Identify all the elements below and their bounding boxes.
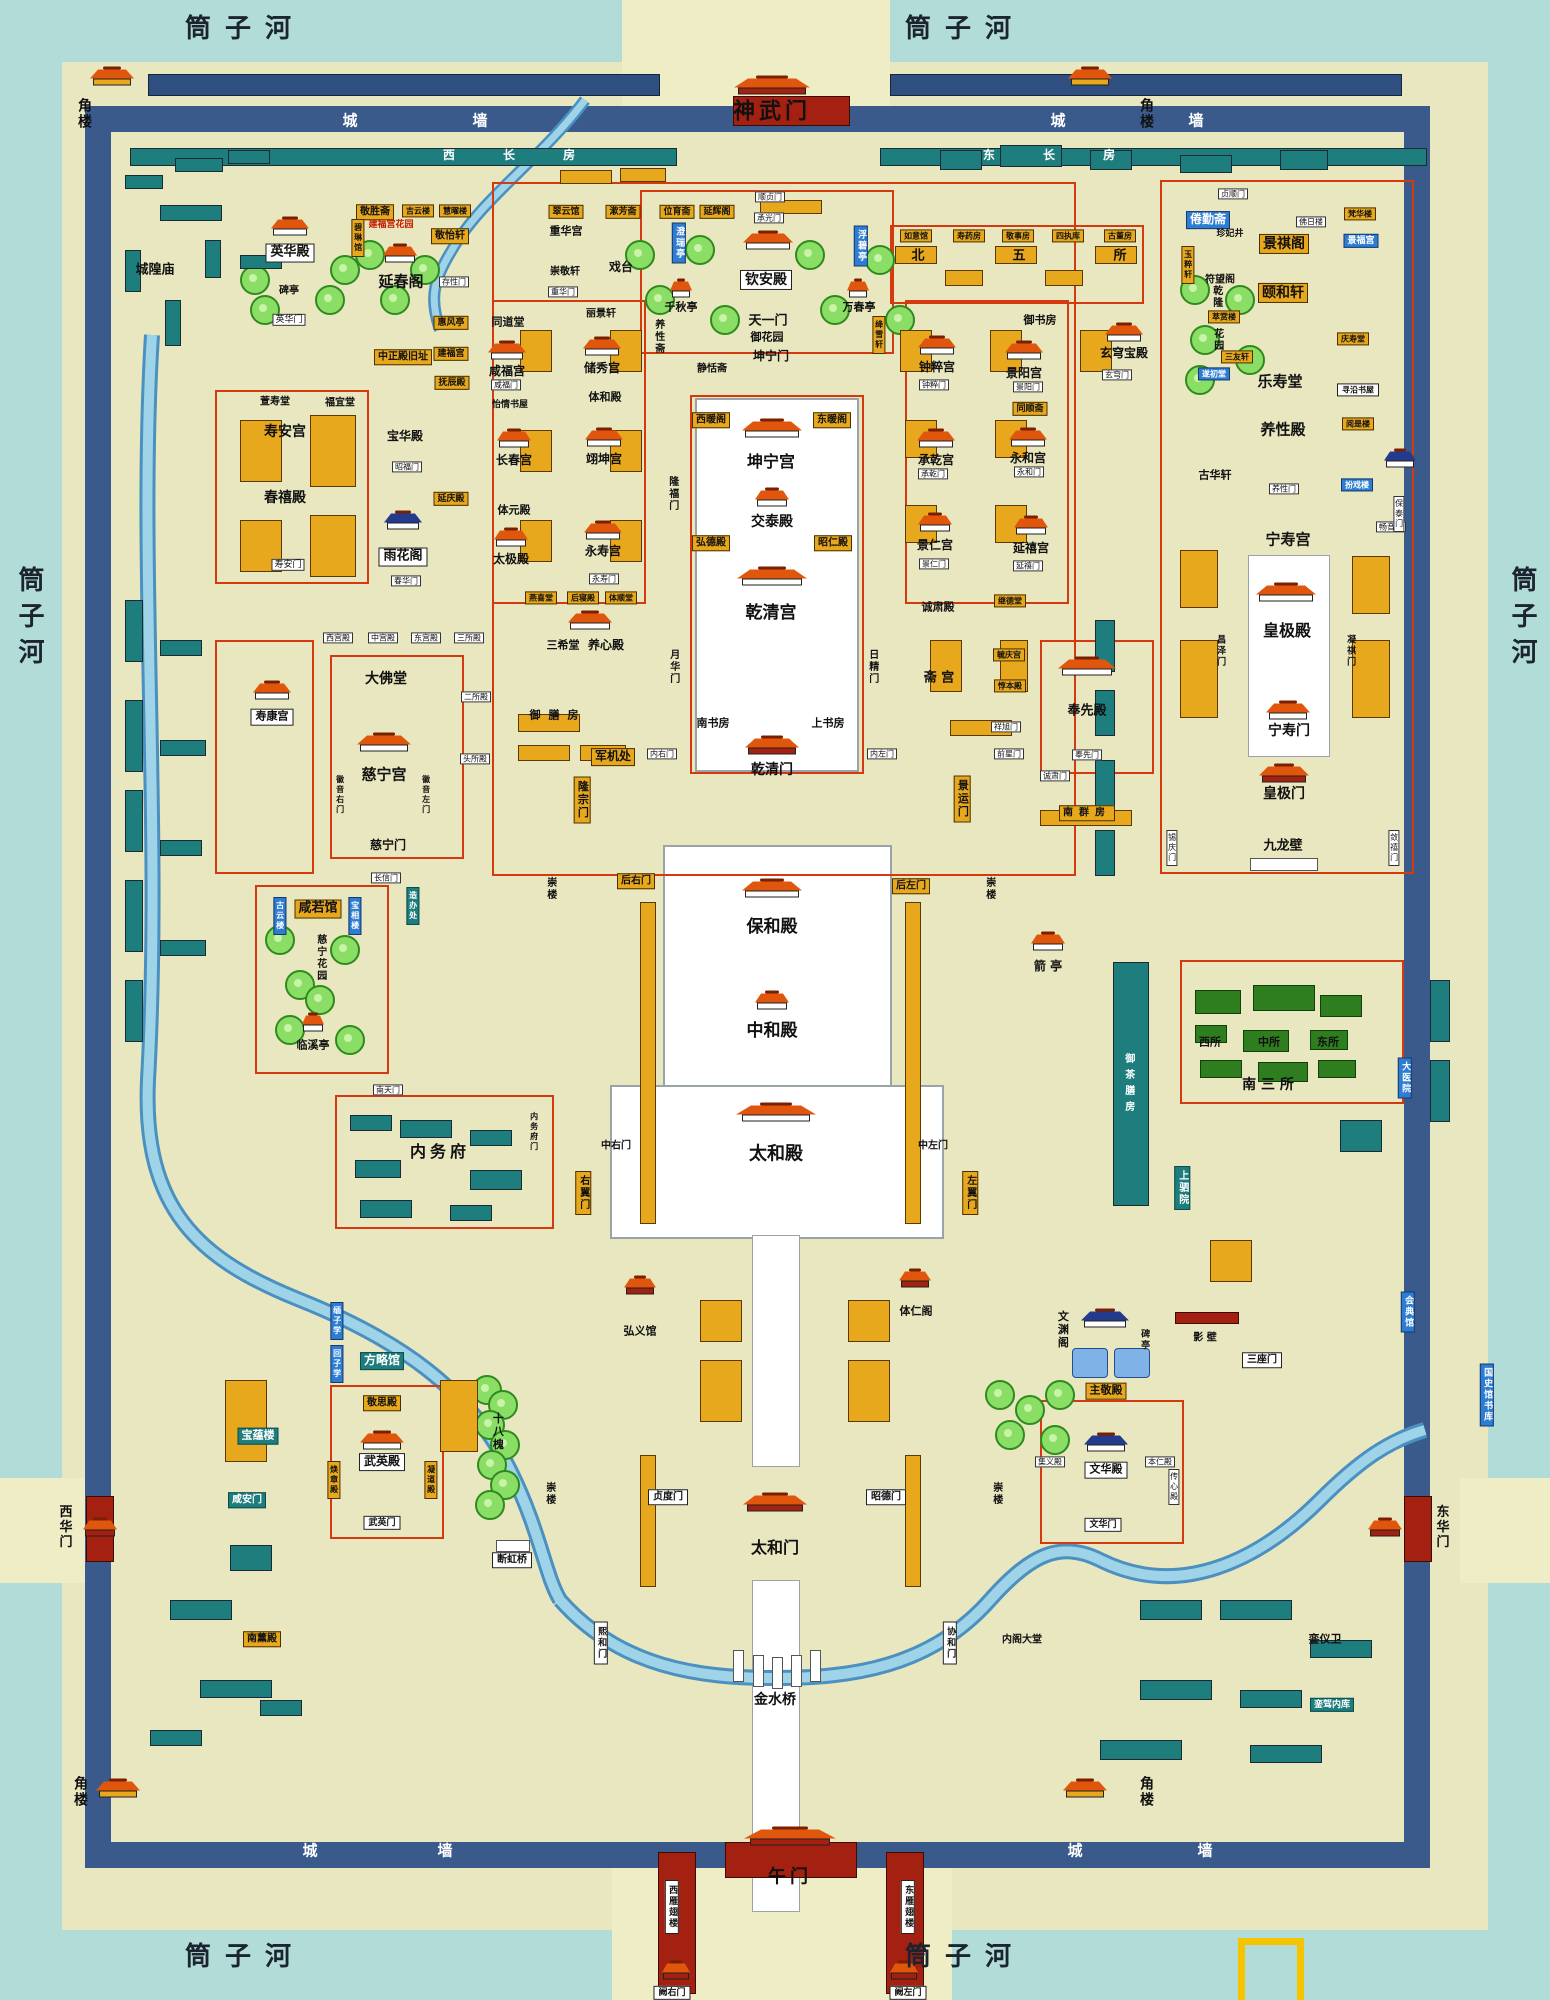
palace-icon xyxy=(899,1269,931,1288)
palace-icon xyxy=(733,76,811,95)
map-label: 南群房 xyxy=(1059,805,1115,821)
map-label: 崇楼 xyxy=(983,877,995,901)
map-label: 坤宁门 xyxy=(753,350,789,364)
tree-icon xyxy=(1040,1425,1070,1455)
map-label: 太和殿 xyxy=(749,1145,803,1166)
yingbi-screen xyxy=(1175,1312,1239,1324)
tree-icon xyxy=(330,255,360,285)
map-label: 玉粹轩 xyxy=(1181,246,1194,284)
map-label: 东 长 房 xyxy=(983,149,1137,163)
map-label: 月华门 xyxy=(667,649,679,685)
map-label: 缅子学 xyxy=(330,1302,343,1340)
map-label: 古董房 xyxy=(1104,229,1136,242)
map-label: 庆寿堂 xyxy=(1337,332,1369,345)
palace-icon xyxy=(1266,701,1310,720)
background-block xyxy=(620,168,666,182)
background-block xyxy=(1195,990,1241,1014)
map-label: 宝蕴楼 xyxy=(238,1428,279,1445)
map-label: 继德堂 xyxy=(994,594,1026,607)
map-label: 后寝殿 xyxy=(567,591,599,604)
map-label: 墙 xyxy=(1197,1842,1212,1859)
golden-water-bridge xyxy=(733,1650,744,1682)
map-label: 重华门 xyxy=(548,286,578,297)
map-label: 大佛堂 xyxy=(365,671,407,687)
background-block xyxy=(1430,1060,1450,1122)
background-block xyxy=(700,1300,742,1342)
map-label: 右翼门 xyxy=(575,1171,591,1215)
map-label: 北 xyxy=(911,250,924,265)
map-label: 乾清宫 xyxy=(746,604,797,624)
map-label: 惇本殿 xyxy=(994,679,1026,692)
background-block xyxy=(700,1360,742,1422)
map-label: 诚肃门 xyxy=(1040,770,1070,781)
background-block xyxy=(125,700,143,772)
background-block xyxy=(1100,1740,1182,1760)
palace-icon xyxy=(488,341,526,360)
map-label: 崇敬轩 xyxy=(550,266,580,278)
map-label: 玄穹宝殿 xyxy=(1100,347,1148,361)
map-label: 武英门 xyxy=(363,1516,400,1530)
map-label: 城 xyxy=(1050,112,1065,129)
tree-icon xyxy=(795,240,825,270)
background-block xyxy=(1352,556,1390,614)
palace-icon xyxy=(1008,428,1048,447)
background-block xyxy=(1318,1060,1356,1078)
palace-icon xyxy=(270,217,310,236)
map-label: 敬思殿 xyxy=(363,1395,401,1411)
ng-logo xyxy=(1238,1938,1304,2000)
background-block xyxy=(1045,270,1083,286)
background-block xyxy=(905,902,921,1224)
map-label: 军机处 xyxy=(591,748,635,766)
map-label: 十八槐 xyxy=(491,1413,504,1452)
map-label: 位育斋 xyxy=(659,205,694,219)
map-label: 养心殿 xyxy=(588,639,624,653)
map-label: 澄瑞亭 xyxy=(672,223,686,264)
map-label: 颐和轩 xyxy=(1258,283,1308,303)
background-block xyxy=(470,1130,512,1146)
map-label: 东宫殿 xyxy=(411,632,441,643)
palace-icon xyxy=(917,336,957,355)
map-label: 寿康宫 xyxy=(251,709,294,726)
tree-icon xyxy=(865,245,895,275)
tree-icon xyxy=(240,265,270,295)
palace-icon xyxy=(496,429,532,448)
map-label: 养性斋 xyxy=(652,319,664,355)
map-label: 弘德殿 xyxy=(692,535,730,551)
map-label: 隆福门 xyxy=(666,476,678,512)
forbidden-city-map: 筒子河筒子河筒子河筒子河筒子河筒子河城墙城墙城墙城墙角楼角楼角楼角楼西 长 房东… xyxy=(0,0,1550,2000)
background-block xyxy=(450,1205,492,1221)
background-block xyxy=(355,1160,401,1178)
tree-icon xyxy=(995,1420,1025,1450)
map-label: 咸福门 xyxy=(491,379,521,390)
map-label: 慈宁花园 xyxy=(314,934,326,982)
map-label: 中右门 xyxy=(601,1140,631,1152)
map-label: 集义殿 xyxy=(1035,1456,1065,1467)
map-label: 皇极殿 xyxy=(1263,622,1311,640)
map-label: 凝道殿 xyxy=(424,1461,437,1499)
map-label: 御书房 xyxy=(1024,315,1057,328)
map-label: 中正殿旧址 xyxy=(374,349,432,365)
background-block xyxy=(200,1680,272,1698)
map-label: 中宫殿 xyxy=(368,632,398,643)
map-label: 金水桥 xyxy=(754,1692,796,1708)
map-label: 阅是楼 xyxy=(1342,417,1374,430)
palace-icon xyxy=(737,567,807,586)
background-block xyxy=(310,515,356,577)
map-label: 断虹桥 xyxy=(492,1552,532,1568)
background-block xyxy=(1180,155,1232,173)
donghuamen-block xyxy=(1404,1496,1432,1562)
map-label: 上驷院 xyxy=(1174,1166,1190,1210)
map-label: 珍妃井 xyxy=(1216,229,1243,239)
background-block xyxy=(1280,150,1328,170)
golden-water-bridge xyxy=(772,1657,783,1689)
map-label: 南天门 xyxy=(373,1084,403,1095)
map-label: 协和门 xyxy=(943,1622,957,1665)
shoukang-compound xyxy=(215,640,314,874)
map-label: 熙和门 xyxy=(594,1622,608,1665)
palace-icon xyxy=(742,231,794,250)
background-block xyxy=(848,1360,890,1422)
map-label: 墙 xyxy=(437,1842,452,1859)
palace-icon xyxy=(301,1013,325,1032)
map-label: 景仁宫 xyxy=(917,539,953,553)
map-label: 国史馆书库 xyxy=(1480,1364,1494,1427)
palace-icon xyxy=(1104,323,1144,342)
background-block xyxy=(1140,1600,1202,1620)
map-label: 保和殿 xyxy=(747,918,798,938)
map-label: 东雁翅楼 xyxy=(901,1880,915,1934)
map-label: 弘义馆 xyxy=(624,1326,657,1339)
map-label: 前星门 xyxy=(994,748,1024,759)
map-label: 延庆殿 xyxy=(433,492,468,506)
map-label: 文渊阁 xyxy=(1056,1311,1069,1350)
background-block xyxy=(125,175,163,189)
palace-icon xyxy=(916,429,956,448)
palace-icon xyxy=(384,511,422,530)
palace-icon xyxy=(493,528,529,547)
map-label: 建福宫花园 xyxy=(368,220,413,230)
map-label: 城 xyxy=(1067,1842,1082,1859)
palace-icon xyxy=(1014,516,1048,535)
map-label: 西 长 房 xyxy=(443,149,597,163)
background-block xyxy=(848,1300,890,1342)
map-label: 景仁门 xyxy=(919,558,949,569)
map-label: 碑亭 xyxy=(279,285,299,297)
background-block xyxy=(1220,1600,1292,1620)
palace-icon xyxy=(1255,583,1317,602)
map-label: 敬怡轩 xyxy=(431,228,469,244)
map-label: 梵华楼 xyxy=(1344,207,1376,220)
map-label: 内阁大堂 xyxy=(1002,1634,1042,1646)
map-label: 寻沿书屋 xyxy=(1337,383,1379,396)
map-label: 景运门 xyxy=(954,776,971,823)
map-label: 坤宁宫 xyxy=(747,453,795,471)
map-label: 浮碧亭 xyxy=(854,226,868,267)
map-label: 昌泽门 xyxy=(1215,635,1225,668)
map-label: 昭仁殿 xyxy=(814,535,852,551)
map-label: 静恬斋 xyxy=(697,363,727,375)
map-label: 筒子河 xyxy=(1506,566,1536,674)
map-label: 乾清门 xyxy=(751,762,793,778)
map-label: 体仁阁 xyxy=(900,1306,933,1319)
map-label: 三希堂 xyxy=(547,640,580,653)
tree-icon xyxy=(305,985,335,1015)
background-block xyxy=(160,740,206,756)
map-label: 昭福门 xyxy=(392,461,422,472)
map-label: 四执库 xyxy=(1052,229,1084,242)
map-label: 后右门 xyxy=(617,873,655,889)
map-label: 筒子河 xyxy=(13,566,43,674)
tree-icon xyxy=(685,235,715,265)
map-label: 会典馆 xyxy=(1401,1292,1415,1333)
map-label: 千秋亭 xyxy=(665,302,698,315)
tree-icon xyxy=(710,305,740,335)
background-block xyxy=(470,1170,522,1190)
map-label: 萃赏楼 xyxy=(1208,310,1240,323)
map-label: 御花园 xyxy=(751,332,784,345)
palace-icon xyxy=(83,1518,117,1537)
palace-icon xyxy=(1258,764,1310,783)
palace-icon xyxy=(360,1431,404,1450)
background-block xyxy=(1095,760,1115,812)
map-label: 佛日楼 xyxy=(1296,216,1326,227)
background-block xyxy=(640,1455,656,1587)
map-label: 中所 xyxy=(1258,1037,1280,1050)
map-label: 碑亭 xyxy=(1139,1329,1149,1351)
map-label: 延春阁 xyxy=(378,273,423,290)
palace-icon xyxy=(252,681,292,700)
map-label: 寿药房 xyxy=(953,229,985,242)
palace-icon xyxy=(918,513,952,532)
map-label: 遂初堂 xyxy=(1198,367,1230,380)
map-label: 景阳门 xyxy=(1013,381,1043,392)
map-label: 角楼 xyxy=(76,98,92,130)
tree-icon xyxy=(315,285,345,315)
map-label: 长春宫 xyxy=(496,454,532,468)
map-label: 敛禧门 xyxy=(1388,830,1399,866)
map-label: 绛雪轩 xyxy=(872,316,885,354)
tree-icon xyxy=(335,1025,365,1055)
map-label: 阙右门 xyxy=(653,1986,690,2000)
duanhong-bridge xyxy=(496,1540,530,1552)
map-label: 本仁殿 xyxy=(1145,1456,1175,1467)
background-block xyxy=(1340,1120,1382,1152)
map-label: 锡庆门 xyxy=(1166,830,1177,866)
map-label: 永和门 xyxy=(1014,466,1044,477)
map-label: 斋 宫 xyxy=(924,672,955,687)
palace-icon xyxy=(90,67,134,86)
map-label: 春禧殿 xyxy=(264,490,306,506)
palace-icon xyxy=(754,488,790,507)
map-label: 三友轩 xyxy=(1221,350,1253,363)
map-label: 奉先门 xyxy=(1072,749,1102,760)
background-block xyxy=(1180,550,1218,608)
map-label: 方略馆 xyxy=(360,1352,404,1370)
map-label: 西华门 xyxy=(56,1505,71,1550)
background-block xyxy=(125,790,143,852)
map-label: 翊坤宫 xyxy=(586,453,622,467)
palace-icon xyxy=(1384,449,1416,468)
map-label: 东所 xyxy=(1317,1037,1339,1050)
map-label: 筒子河 xyxy=(905,1943,1025,1973)
background-block xyxy=(125,600,143,662)
map-label: 慈宁宫 xyxy=(361,766,406,783)
palace-icon xyxy=(744,736,800,755)
map-label: 宁寿宫 xyxy=(1265,531,1310,548)
map-label: 内左门 xyxy=(867,748,897,759)
palace-icon xyxy=(755,991,789,1010)
map-label: 崇楼 xyxy=(543,1482,555,1506)
map-label: 吉云楼 xyxy=(402,204,434,217)
map-label: 永寿门 xyxy=(589,573,619,584)
map-label: 钦安殿 xyxy=(740,270,792,290)
background-block xyxy=(1140,1680,1212,1700)
background-block xyxy=(225,1380,267,1462)
golden-water-bridge xyxy=(810,1650,821,1682)
background-block xyxy=(1430,980,1450,1042)
palace-icon xyxy=(661,1961,691,1980)
palace-icon xyxy=(1030,932,1066,951)
map-label: 太极殿 xyxy=(493,553,529,567)
map-label: 毓庆宫 xyxy=(993,648,1025,661)
tree-icon xyxy=(985,1380,1015,1410)
map-label: 墙 xyxy=(1188,112,1203,129)
background-block xyxy=(350,1115,392,1131)
map-label: 寿安宫 xyxy=(264,424,306,440)
map-label: 凝祺门 xyxy=(1345,635,1355,668)
map-label: 养性殿 xyxy=(1260,421,1305,438)
map-label: 漱芳斋 xyxy=(605,205,640,219)
palace-icon xyxy=(583,521,623,540)
map-label: 惠风亭 xyxy=(433,316,468,330)
background-block xyxy=(175,158,223,172)
map-label: 筒子河 xyxy=(185,1943,305,1973)
map-label: 存性门 xyxy=(439,276,469,287)
background-block xyxy=(260,1700,302,1716)
map-label: 二所殿 xyxy=(461,691,491,702)
map-label: 隆宗门 xyxy=(574,777,591,824)
tree-icon xyxy=(1015,1395,1045,1425)
palace-icon xyxy=(1084,1433,1128,1452)
palace-icon xyxy=(96,1779,140,1798)
map-label: 西所 xyxy=(1199,1037,1221,1050)
map-label: 天一门 xyxy=(748,315,787,330)
background-block xyxy=(1250,1745,1322,1763)
map-label: 咸安门 xyxy=(228,1492,266,1508)
background-block xyxy=(160,640,202,656)
map-label: 承乾门 xyxy=(918,468,948,479)
map-label: 阙左门 xyxy=(889,1986,926,2000)
map-label: 戏台 xyxy=(609,261,633,275)
map-label: 钟粹门 xyxy=(919,379,949,390)
map-label: 宝相楼 xyxy=(348,897,361,935)
background-block xyxy=(905,1455,921,1587)
background-block xyxy=(400,1120,452,1138)
palace-icon xyxy=(1004,341,1044,360)
map-label: 怡情书屋 xyxy=(492,400,528,410)
map-label: 贞顺门 xyxy=(1218,188,1248,199)
map-label: 昭德门 xyxy=(866,1489,906,1505)
map-label: 后左门 xyxy=(892,878,930,894)
map-label: 交泰殿 xyxy=(751,514,793,530)
map-label: 銮驾内库 xyxy=(1310,1698,1354,1712)
palace-icon xyxy=(624,1276,656,1295)
map-label: 乾隆 xyxy=(1210,285,1222,309)
map-label: 箭 亭 xyxy=(1034,960,1062,974)
background-block xyxy=(1240,1690,1302,1708)
palace-icon xyxy=(742,1493,808,1512)
map-label: 影 壁 xyxy=(1193,1332,1216,1344)
map-label: 三座门 xyxy=(1242,1352,1282,1368)
map-label: 丽景轩 xyxy=(586,308,616,320)
palace-icon xyxy=(741,879,803,898)
map-label: 春华门 xyxy=(391,575,421,586)
background-block xyxy=(160,205,222,221)
map-label: 景祺阁 xyxy=(1259,234,1309,254)
background-block xyxy=(205,240,221,278)
map-label: 徽音左门 xyxy=(421,775,430,815)
palace-icon xyxy=(382,244,418,263)
palace-icon xyxy=(567,611,613,630)
map-label: 储秀宫 xyxy=(584,362,620,376)
map-label: 中和殿 xyxy=(747,1022,798,1042)
background-block xyxy=(1095,830,1115,876)
map-label: 诚肃殿 xyxy=(922,602,955,615)
map-label: 皇极门 xyxy=(1263,786,1305,802)
map-label: 福宜堂 xyxy=(325,397,355,409)
palace-icon xyxy=(741,419,803,438)
background-block xyxy=(440,1380,478,1452)
map-label: 筒子河 xyxy=(185,15,305,45)
map-label: 重华宫 xyxy=(550,226,583,239)
map-label: 延辉阁 xyxy=(699,205,734,219)
nine-dragon-screen xyxy=(1250,858,1318,871)
map-label: 焕章殿 xyxy=(327,1461,340,1499)
map-label: 所 xyxy=(1113,250,1126,265)
map-label: 英华门 xyxy=(272,314,305,326)
map-label: 寿安门 xyxy=(271,559,304,571)
map-label: 九龙壁 xyxy=(1263,840,1302,855)
map-label: 中左门 xyxy=(918,1140,948,1152)
map-label: 古华轩 xyxy=(1199,470,1232,483)
map-label: 燕喜堂 xyxy=(525,591,557,604)
map-label: 体顺堂 xyxy=(605,591,637,604)
map-label: 御茶膳房 xyxy=(1122,1053,1134,1117)
map-label: 敬事房 xyxy=(1002,229,1034,242)
map-label: 西暖阁 xyxy=(692,412,730,428)
map-label: 长信门 xyxy=(371,872,401,883)
palace-icon xyxy=(736,1103,816,1122)
map-label: 同顺斋 xyxy=(1012,402,1047,416)
map-label: 上书房 xyxy=(812,718,845,731)
map-label: 宝华殿 xyxy=(387,430,423,444)
map-label: 永和宫 xyxy=(1010,452,1046,466)
map-label: 西雁翅楼 xyxy=(665,1880,679,1934)
map-label: 徽音右门 xyxy=(335,775,344,815)
background-block xyxy=(310,415,356,487)
palace-icon xyxy=(582,337,622,356)
map-label: 乐寿堂 xyxy=(1257,373,1302,390)
map-label: 御膳房 xyxy=(530,710,587,723)
background-block xyxy=(940,150,982,170)
map-label: 万春亭 xyxy=(843,302,876,315)
map-label: 花园 xyxy=(1211,328,1223,352)
background-block xyxy=(150,1730,202,1746)
map-label: 左翼门 xyxy=(962,1171,978,1215)
